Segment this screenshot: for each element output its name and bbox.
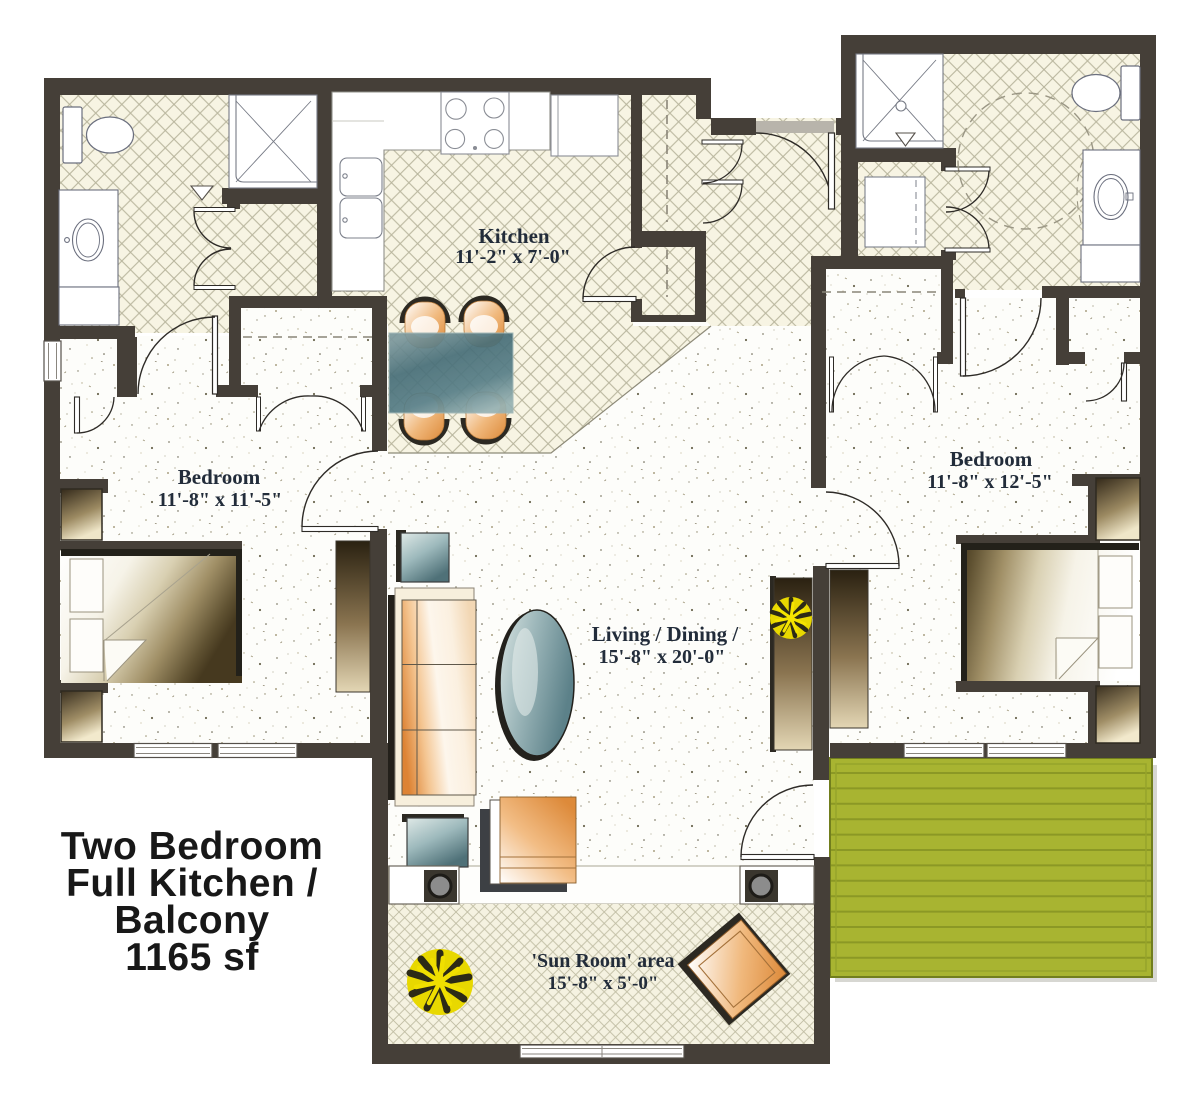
svg-text:Bedroom: Bedroom [178, 465, 261, 489]
svg-text:11'-2" x 7'-0": 11'-2" x 7'-0" [455, 246, 571, 268]
svg-text:15'-8" x 20'-0": 15'-8" x 20'-0" [599, 646, 726, 668]
svg-text:11'-8" x 12'-5": 11'-8" x 12'-5" [927, 471, 1053, 493]
svg-text:15'-8" x 5'-0": 15'-8" x 5'-0" [548, 973, 659, 994]
svg-text:Bedroom: Bedroom [950, 447, 1033, 471]
svg-text:'Sun Room' area: 'Sun Room' area [532, 950, 675, 972]
svg-text:Living / Dining /: Living / Dining / [592, 622, 740, 646]
svg-text:11'-8" x 11'-5": 11'-8" x 11'-5" [158, 489, 282, 511]
svg-text:Kitchen: Kitchen [478, 224, 549, 248]
